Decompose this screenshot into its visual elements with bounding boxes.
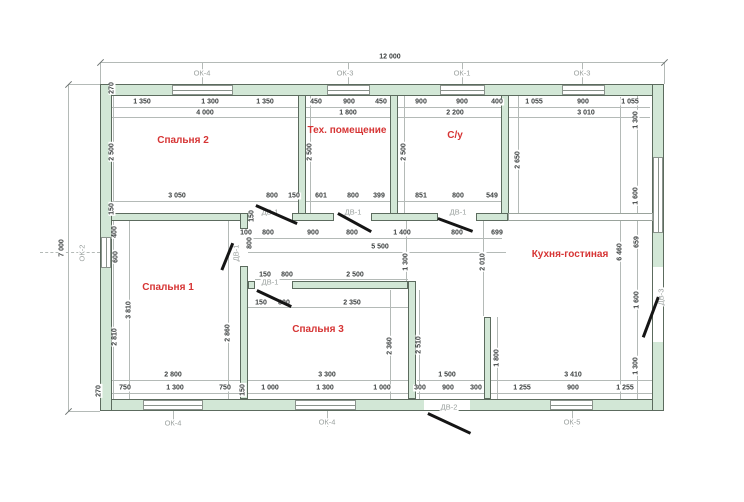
dim-label: 399 — [372, 193, 386, 200]
window-glass-line — [106, 238, 107, 267]
dimension-line — [68, 411, 100, 412]
dim-label: 7 000 — [59, 238, 66, 258]
axis-tag: ДВ-1 — [344, 208, 363, 216]
dimension-line — [68, 84, 100, 85]
axis-tag: ОК-5 — [563, 418, 582, 426]
window-ОК-4 top — [172, 85, 233, 95]
dim-label: 2 500 — [109, 142, 116, 162]
dim-label: 150 — [287, 193, 301, 200]
dim-label: 900 — [414, 99, 428, 106]
wall-segment — [240, 266, 248, 399]
dim-label: 150 — [109, 202, 116, 216]
dim-label: 1 055 — [620, 99, 640, 106]
window-glass-line — [441, 90, 484, 91]
dim-label: 1 800 — [494, 348, 501, 368]
window-glass-line — [144, 405, 202, 406]
dim-label: 549 — [485, 193, 499, 200]
dimension-line — [306, 117, 391, 118]
room-label: Спальня 3 — [292, 325, 344, 335]
window-glass-line — [173, 90, 232, 91]
window-glass-line — [551, 405, 592, 406]
dim-label: 900 — [441, 385, 455, 392]
window-ОК-2 left — [101, 237, 111, 268]
axis-tag: ОК-4 — [193, 69, 212, 77]
wall-segment — [292, 213, 334, 221]
dim-label: 800 — [346, 193, 360, 200]
dim-label: 1 600 — [634, 290, 641, 310]
dim-label: 2 810 — [112, 327, 119, 347]
dim-label: 1 800 — [338, 110, 358, 117]
dimension-line — [398, 107, 502, 108]
dimension-line — [248, 393, 408, 394]
dim-label: 150 — [240, 383, 247, 397]
dimension-line — [490, 380, 653, 381]
dim-label: 800 — [450, 230, 464, 237]
dim-label: 1 350 — [132, 99, 152, 106]
dimension-line — [100, 62, 101, 84]
wall-segment — [501, 95, 509, 221]
dim-label: 400 — [490, 99, 504, 106]
wall-segment — [476, 213, 508, 221]
dimension-line — [111, 107, 299, 108]
dimension-line — [111, 393, 241, 394]
room-label: Тех. помещение — [308, 126, 387, 136]
dim-label: 800 — [265, 193, 279, 200]
dim-label: 2 200 — [445, 110, 465, 117]
dim-label: 400 — [112, 225, 119, 239]
dim-label: 5 500 — [370, 244, 390, 251]
dim-label: 750 — [118, 385, 132, 392]
dimension-line — [417, 380, 485, 381]
dimension-line — [306, 201, 391, 202]
dim-label: 2 500 — [401, 142, 408, 162]
dim-label: 600 — [113, 250, 120, 264]
dim-label: 4 000 — [195, 110, 215, 117]
dim-label: 2 500 — [345, 272, 365, 279]
wall-segment — [371, 213, 438, 221]
dimension-line — [508, 107, 650, 108]
dim-label: 3 810 — [126, 300, 133, 320]
axis-tag: ДВ-1 — [449, 208, 468, 216]
window-ОК-5 bottom — [550, 400, 593, 410]
dim-label: 601 — [314, 193, 328, 200]
dim-label: 450 — [374, 99, 388, 106]
dim-label: 900 — [306, 230, 320, 237]
axis-tag: ОК-2 — [78, 244, 86, 263]
room-label: Спальня 1 — [142, 283, 194, 293]
dim-label: 1 000 — [372, 385, 392, 392]
window-ОК-4 bottom-2 — [295, 400, 356, 410]
dimension-line — [490, 393, 653, 394]
axis-tag: ОК-4 — [318, 418, 337, 426]
dimension-line — [664, 62, 665, 84]
dim-label: 2 500 — [307, 142, 314, 162]
dimension-line — [111, 201, 299, 202]
dim-label: 1 600 — [633, 186, 640, 206]
wall-segment — [248, 281, 255, 289]
dim-label: 800 — [451, 193, 465, 200]
axis-tag: ДВ-1 — [232, 244, 240, 263]
axis-tag: ДВ-1 — [261, 278, 280, 286]
dim-label: 900 — [566, 385, 580, 392]
dim-label: 270 — [96, 384, 103, 398]
dim-label: 2 510 — [416, 335, 423, 355]
dim-label: 1 255 — [615, 385, 635, 392]
dim-label: 750 — [218, 385, 232, 392]
dimension-line — [248, 380, 408, 381]
dim-label: 12 000 — [378, 54, 401, 61]
dim-label: 1 300 — [403, 252, 410, 272]
room-label: Спальня 2 — [157, 136, 209, 146]
wall-segment — [240, 213, 248, 229]
dim-label: 3 050 — [167, 193, 187, 200]
dim-label: 699 — [490, 230, 504, 237]
wall-segment — [484, 317, 491, 399]
dim-label: 1 255 — [512, 385, 532, 392]
dim-label: 6 460 — [617, 242, 624, 262]
dim-label: 3 410 — [563, 372, 583, 379]
axis-tag: ДВ-2 — [440, 403, 459, 411]
dim-label: 150 — [254, 300, 268, 307]
dim-label: 800 — [261, 230, 275, 237]
dim-label: 3 300 — [317, 372, 337, 379]
dimension-line — [68, 84, 69, 411]
dim-label: 1 055 — [524, 99, 544, 106]
axis-tag: ОК-4 — [164, 419, 183, 427]
dim-label: 2 650 — [515, 150, 522, 170]
dim-label: 1 350 — [255, 99, 275, 106]
dimension-line — [40, 252, 100, 253]
wall-segment — [390, 95, 398, 221]
dimension-line — [508, 117, 650, 118]
window-ОК-1 top — [440, 85, 485, 95]
dim-label: 1 300 — [315, 385, 335, 392]
dim-label: 900 — [342, 99, 356, 106]
dimension-line — [248, 238, 502, 239]
dim-label: 800 — [247, 236, 254, 250]
window-glass-line — [296, 405, 355, 406]
wall-segment — [652, 84, 664, 411]
window-glass-line — [658, 158, 659, 232]
dim-label: 1 500 — [437, 372, 457, 379]
dimension-line — [113, 95, 114, 399]
window-ОК-3 top — [327, 85, 370, 95]
dimension-line — [398, 201, 502, 202]
dimension-line — [398, 117, 502, 118]
wall-segment — [111, 213, 254, 221]
dim-label: 450 — [309, 99, 323, 106]
dim-label: 900 — [576, 99, 590, 106]
dim-label: 2 860 — [225, 323, 232, 343]
wall-segment — [298, 95, 306, 221]
dimension-line — [248, 252, 506, 253]
dim-label: 2 800 — [163, 372, 183, 379]
dimension-line — [111, 380, 241, 381]
axis-tag: ОК-1 — [453, 69, 472, 77]
room-label: С/у — [447, 131, 463, 141]
wall-segment — [292, 281, 408, 289]
dim-label: 1 300 — [200, 99, 220, 106]
door-swing-ДВ-2 вход снизу — [427, 412, 471, 434]
dim-label: 300 — [469, 385, 483, 392]
window-glass-line — [328, 90, 369, 91]
dim-label: 3 010 — [576, 110, 596, 117]
room-label: Кухня-гостиная — [532, 250, 609, 260]
dim-label: 800 — [345, 230, 359, 237]
dim-label: 851 — [414, 193, 428, 200]
dimension-line — [248, 307, 408, 308]
window-ОК-3 top-2 — [562, 85, 605, 95]
dim-label: 1 400 — [392, 230, 412, 237]
dimension-line — [306, 107, 391, 108]
window-ОК-4 bottom — [143, 400, 203, 410]
window-glass-line — [563, 90, 604, 91]
window-окно right — [653, 157, 663, 233]
dim-label: 2 010 — [480, 252, 487, 272]
axis-tag: ОК-3 — [573, 69, 592, 77]
dim-label: 659 — [634, 235, 641, 249]
axis-tag: ОК-3 — [336, 69, 355, 77]
dimension-line — [417, 393, 485, 394]
dim-label: 2 360 — [387, 336, 394, 356]
dim-label: 300 — [413, 385, 427, 392]
dimension-line — [111, 117, 299, 118]
dim-label: 1 000 — [260, 385, 280, 392]
dim-label: 1 300 — [633, 356, 640, 376]
floor-plan: 12 0001 3501 3001 3504509004509009004001… — [0, 0, 744, 502]
dim-label: 1 300 — [165, 385, 185, 392]
dim-label: 800 — [280, 272, 294, 279]
dim-label: 1 300 — [633, 110, 640, 130]
dim-label: 150 — [249, 209, 256, 223]
dimension-line — [100, 62, 664, 63]
dim-label: 270 — [109, 81, 116, 95]
dim-label: 900 — [455, 99, 469, 106]
dim-label: 2 350 — [342, 300, 362, 307]
opening-проём кухни — [508, 213, 653, 221]
